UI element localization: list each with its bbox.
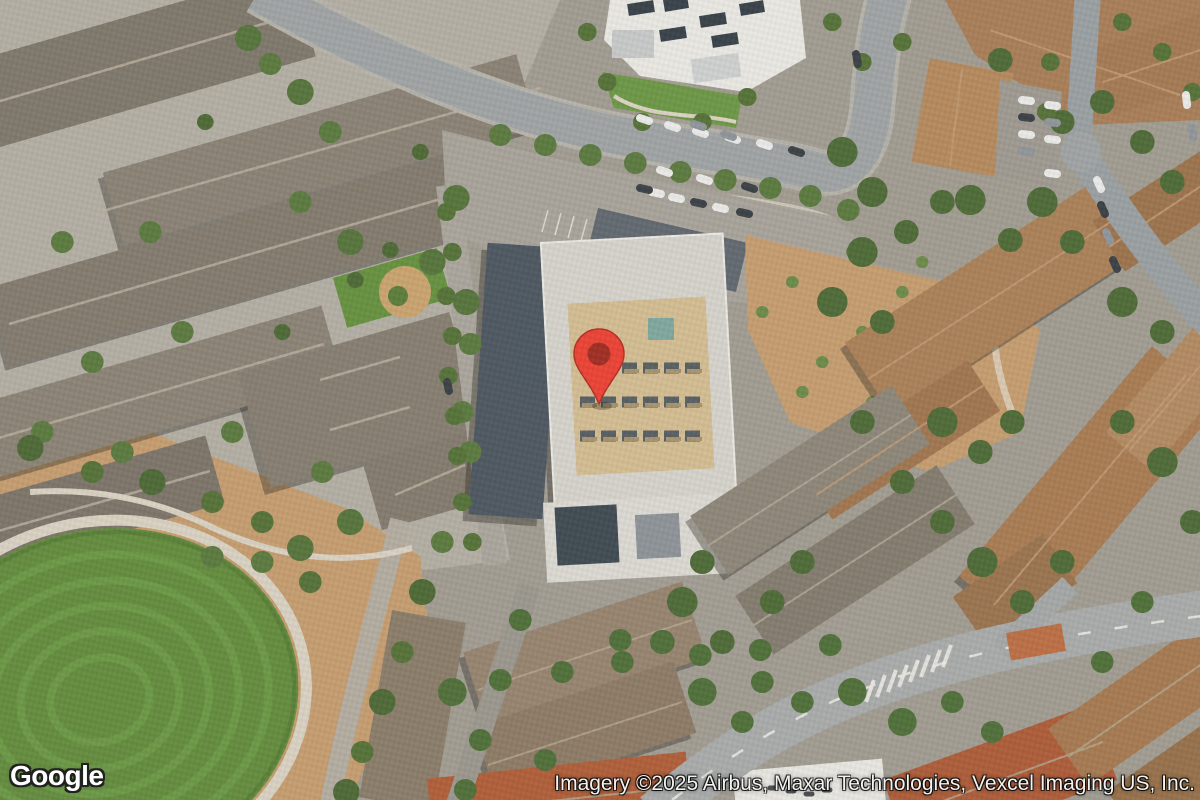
teal-roof-unit [648, 318, 674, 340]
satellite-map-canvas[interactable]: Google Imagery ©2025 Airbus, Maxar Techn… [0, 0, 1200, 800]
google-logo[interactable]: Google [10, 760, 103, 792]
street-north [1078, 0, 1088, 150]
pin-dot [588, 343, 611, 366]
aerial-imagery [0, 0, 1200, 800]
map-attribution: Imagery ©2025 Airbus, Maxar Technologies… [554, 772, 1195, 796]
